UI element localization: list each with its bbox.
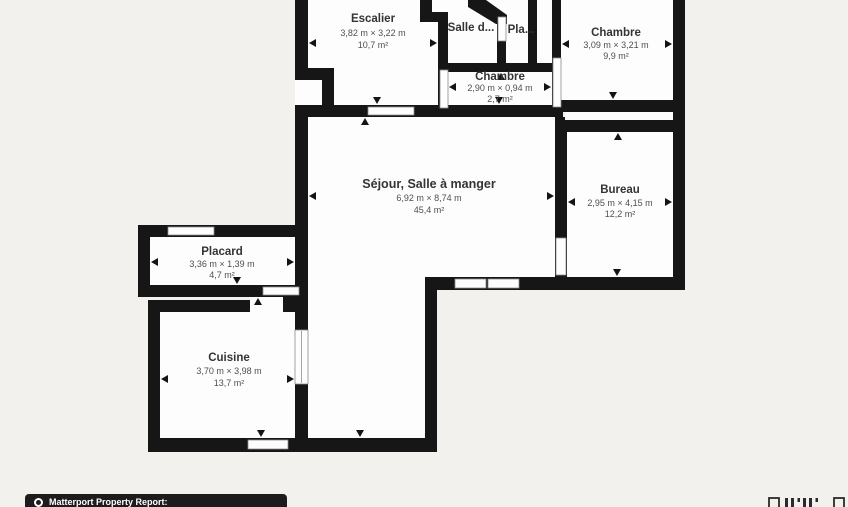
room-dims-chambre-2: 2,90 m × 0,94 m	[467, 83, 532, 93]
wall	[673, 0, 685, 132]
room-dims-cuisine: 3,70 m × 3,98 m	[196, 366, 261, 376]
wall	[552, 100, 684, 112]
room-label-chambre-1: Chambre	[591, 27, 641, 39]
wall	[555, 120, 685, 132]
room-area-placard: 4,7 m²	[209, 270, 235, 280]
room-label-chambre-2: Chambre	[475, 71, 525, 83]
wall	[425, 277, 437, 452]
matterport-watermark-icon	[768, 497, 846, 507]
wall	[283, 297, 295, 312]
room-label-sejour: Séjour, Salle à manger	[362, 177, 496, 191]
wall	[148, 300, 250, 312]
door-opening	[553, 58, 561, 107]
room-label-salle-deau: Salle d...	[448, 22, 495, 34]
room-area-bureau: 12,2 m²	[605, 209, 636, 219]
wall	[295, 105, 563, 117]
floorplan-svg: Escalier 3,82 m × 3,22 m 10,7 m² Salle d…	[0, 0, 848, 507]
matterport-logo-icon	[34, 498, 43, 507]
footer-report-bar: Matterport Property Report:	[25, 494, 287, 507]
wall	[673, 120, 685, 290]
door-opening	[488, 279, 519, 288]
room-dims-placard: 3,36 m × 1,39 m	[189, 259, 254, 269]
door-opening	[556, 238, 566, 275]
room-floor-escalier-notch	[295, 80, 322, 105]
floorplan-page: Escalier 3,82 m × 3,22 m 10,7 m² Salle d…	[0, 0, 848, 507]
room-area-chambre-2: 2,7 m²	[487, 94, 513, 104]
door-opening	[263, 287, 299, 295]
room-label-escalier: Escalier	[351, 13, 396, 25]
wall	[295, 105, 308, 450]
wall	[148, 438, 437, 452]
room-label-placard: Placard	[201, 246, 243, 258]
room-label-placard-haut: Pla...	[508, 24, 535, 36]
room-dims-chambre-1: 3,09 m × 3,21 m	[583, 40, 648, 50]
door-opening	[498, 17, 506, 41]
room-dims-sejour: 6,92 m × 8,74 m	[396, 193, 461, 203]
wall	[138, 225, 302, 237]
room-area-escalier: 10,7 m²	[358, 40, 389, 50]
room-area-cuisine: 13,7 m²	[214, 378, 245, 388]
door-opening	[368, 107, 414, 115]
room-dims-escalier: 3,82 m × 3,22 m	[340, 28, 405, 38]
room-dims-bureau: 2,95 m × 4,15 m	[587, 198, 652, 208]
door-opening	[168, 227, 214, 235]
door-opening	[455, 279, 486, 288]
room-area-sejour: 45,4 m²	[414, 205, 445, 215]
room-area-chambre-1: 9,9 m²	[603, 51, 629, 61]
door-opening	[440, 70, 448, 108]
room-label-bureau: Bureau	[600, 184, 640, 196]
footer-report-label: Matterport Property Report:	[49, 497, 168, 507]
room-label-cuisine: Cuisine	[208, 352, 250, 364]
wall-gap	[565, 112, 673, 120]
wall	[148, 300, 160, 452]
door-opening	[248, 440, 288, 449]
